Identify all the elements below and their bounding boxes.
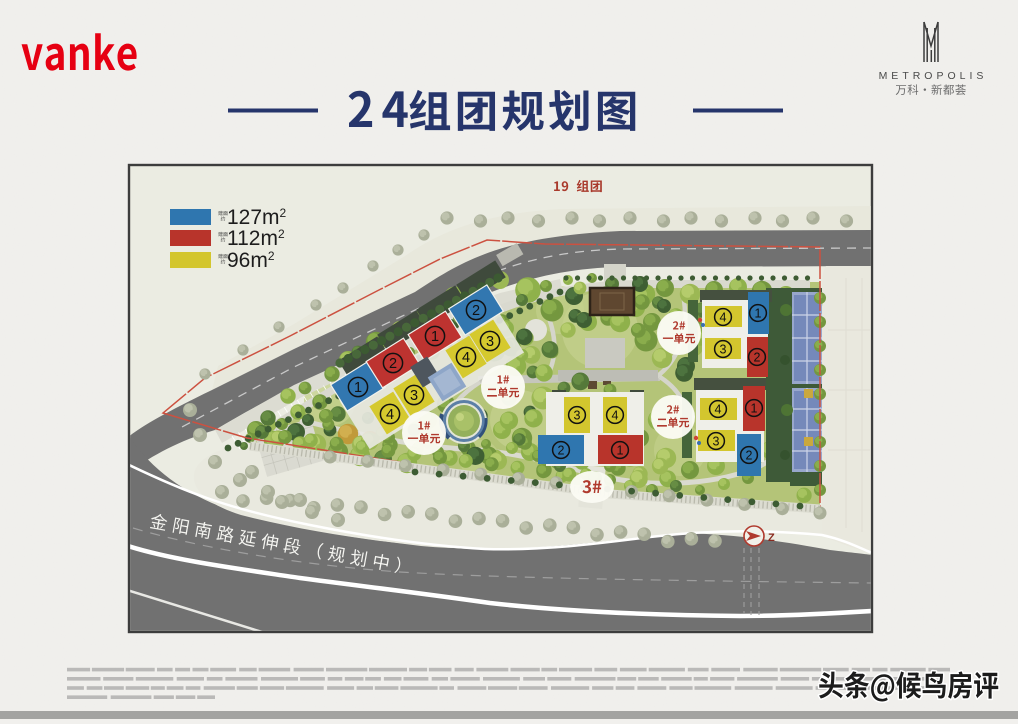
svg-text:96m2: 96m2 — [227, 249, 275, 272]
svg-text:3: 3 — [574, 408, 581, 422]
svg-text:1: 1 — [354, 380, 362, 396]
svg-text:2: 2 — [746, 448, 753, 462]
svg-text:3: 3 — [486, 334, 494, 350]
svg-text:1: 1 — [751, 401, 758, 415]
svg-text:2: 2 — [754, 350, 761, 364]
svg-text:4: 4 — [462, 350, 470, 366]
svg-text:METROPOLIS: METROPOLIS — [879, 70, 988, 82]
svg-text:4: 4 — [386, 407, 394, 423]
svg-text:127m2: 127m2 — [227, 206, 287, 229]
svg-text:2: 2 — [389, 356, 397, 372]
svg-text:3: 3 — [713, 434, 720, 448]
svg-text:112m2: 112m2 — [227, 227, 285, 250]
svg-text:3: 3 — [410, 388, 418, 404]
svg-text:4: 4 — [715, 402, 722, 416]
svg-text:1: 1 — [617, 443, 624, 457]
svg-text:4: 4 — [612, 408, 619, 422]
svg-text:3: 3 — [720, 342, 727, 356]
svg-text:4: 4 — [720, 310, 727, 324]
svg-text:2: 2 — [472, 303, 480, 319]
svg-text:1: 1 — [431, 329, 439, 345]
svg-text:2: 2 — [558, 443, 565, 457]
svg-text:1: 1 — [755, 306, 762, 320]
svg-text:Z: Z — [768, 532, 775, 544]
